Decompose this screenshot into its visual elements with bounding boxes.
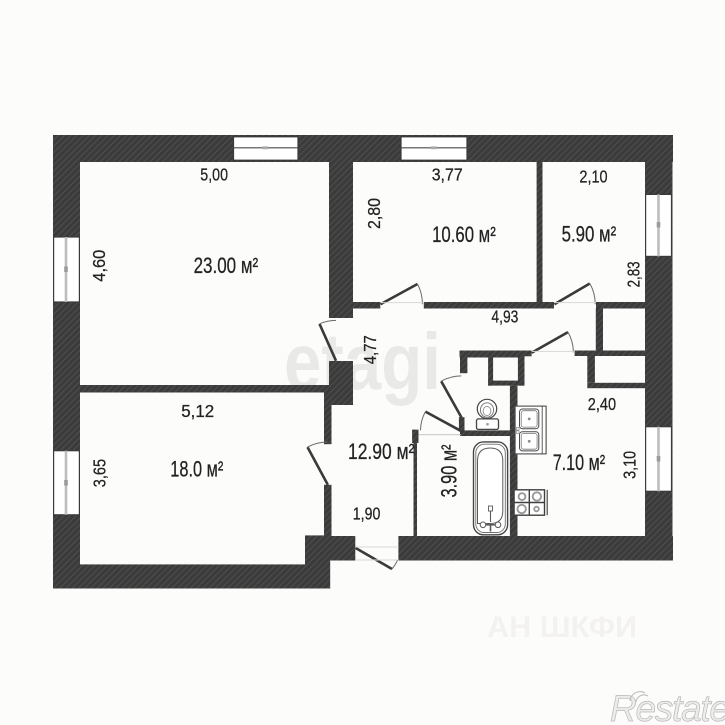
svg-text:3,10: 3,10 (619, 451, 639, 479)
svg-text:3,65: 3,65 (89, 459, 109, 487)
svg-text:4,77: 4,77 (360, 335, 380, 364)
svg-text:2,83: 2,83 (623, 261, 643, 287)
svg-text:18.0 м²: 18.0 м² (170, 456, 223, 481)
svg-text:5,00: 5,00 (200, 164, 228, 184)
svg-text:2,40: 2,40 (588, 394, 617, 414)
svg-text:4,60: 4,60 (89, 249, 109, 281)
svg-text:4,93: 4,93 (491, 307, 518, 327)
svg-text:2,10: 2,10 (579, 167, 607, 187)
svg-text:2,80: 2,80 (364, 198, 384, 229)
svg-text:5,12: 5,12 (181, 401, 214, 421)
svg-text:Restate: Restate (610, 688, 725, 725)
svg-text:1,90: 1,90 (353, 504, 381, 524)
svg-text:3.90 м²: 3.90 м² (437, 445, 462, 498)
svg-text:АН ШКФИ: АН ШКФИ (487, 611, 637, 644)
svg-text:10.60 м²: 10.60 м² (432, 222, 496, 247)
svg-text:5.90 м²: 5.90 м² (562, 222, 617, 247)
svg-text:23.00 м²: 23.00 м² (194, 253, 259, 278)
svg-text:12.90 м²: 12.90 м² (348, 439, 414, 464)
svg-text:3,77: 3,77 (432, 165, 463, 185)
svg-text:7.10 м²: 7.10 м² (553, 450, 605, 475)
